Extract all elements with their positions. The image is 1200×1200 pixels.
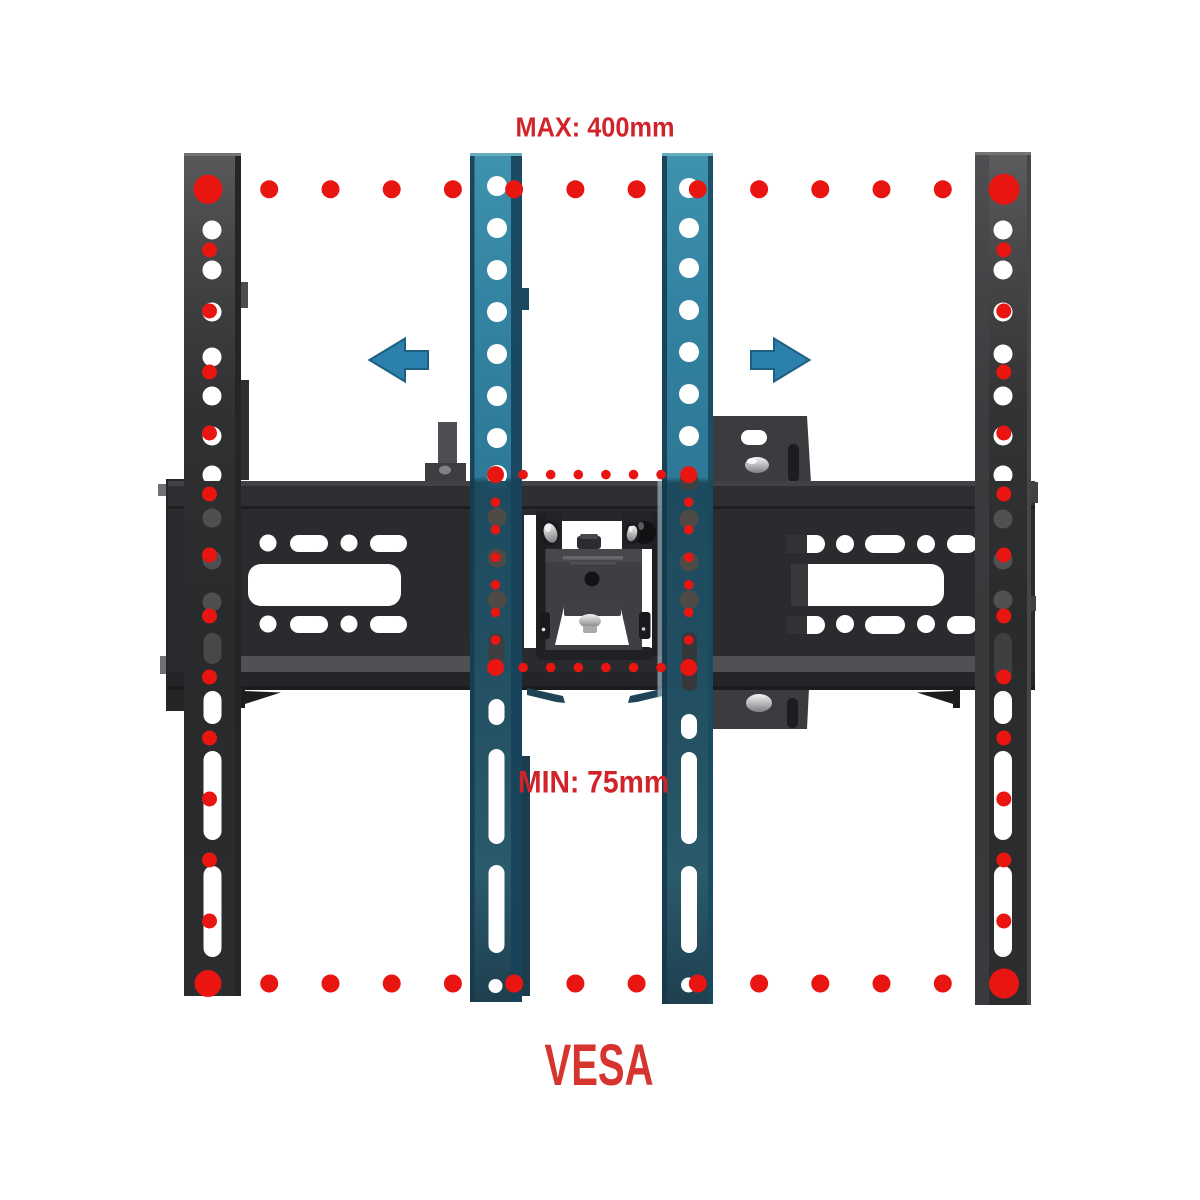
svg-text:VESA: VESA — [545, 1033, 654, 1098]
svg-text:MAX: 400mm: MAX: 400mm — [516, 112, 675, 143]
svg-text:MIN: 75mm: MIN: 75mm — [518, 764, 669, 800]
